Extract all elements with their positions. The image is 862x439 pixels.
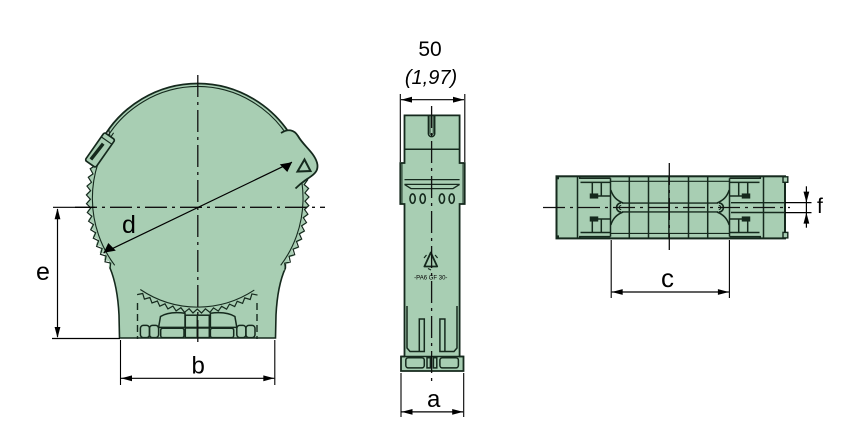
- svg-text:c: c: [661, 263, 674, 293]
- svg-text:d: d: [122, 211, 136, 239]
- svg-text:b: b: [192, 353, 205, 380]
- svg-text:50: 50: [418, 38, 441, 61]
- svg-text:a: a: [427, 386, 441, 413]
- svg-text:e: e: [36, 258, 50, 286]
- svg-text:(1,97): (1,97): [405, 67, 457, 89]
- svg-text:-PA6 GF 30-: -PA6 GF 30-: [414, 276, 447, 282]
- svg-text:f: f: [817, 195, 823, 218]
